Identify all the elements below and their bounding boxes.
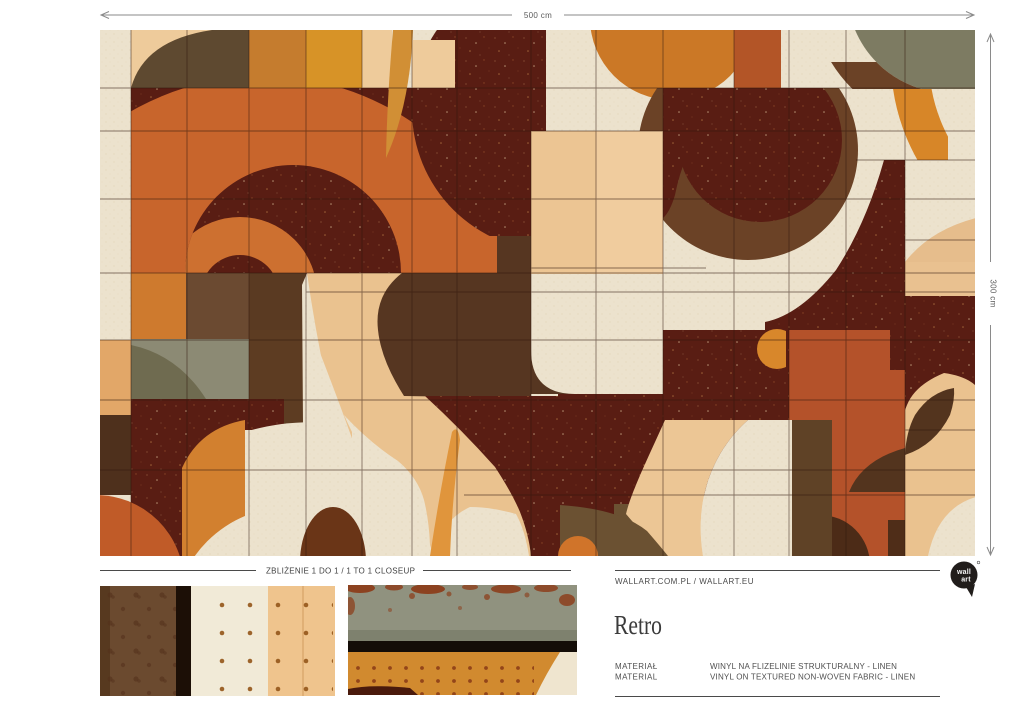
svg-text:Retro: Retro xyxy=(614,611,662,641)
svg-text:WALLART.COM.PL / WALLART.EU: WALLART.COM.PL / WALLART.EU xyxy=(615,577,754,586)
svg-text:MATERIAL: MATERIAL xyxy=(615,673,658,682)
svg-text:VINYL ON TEXTURED NON-WOVEN FA: VINYL ON TEXTURED NON-WOVEN FABRIC - LIN… xyxy=(710,673,915,682)
svg-text:WINYL NA FLIZELINIE STRUKTURAL: WINYL NA FLIZELINIE STRUKTURALNY - LINEN xyxy=(710,662,897,671)
svg-text:300 cm: 300 cm xyxy=(989,279,998,307)
svg-text:wall: wall xyxy=(956,569,971,576)
svg-text:MATERIAŁ: MATERIAŁ xyxy=(615,662,658,671)
svg-text:ZBLIŻENIE 1 DO 1 / 1 TO 1 CLOS: ZBLIŻENIE 1 DO 1 / 1 TO 1 CLOSEUP xyxy=(266,567,415,576)
svg-text:art: art xyxy=(961,577,971,584)
svg-text:500 cm: 500 cm xyxy=(524,11,552,20)
